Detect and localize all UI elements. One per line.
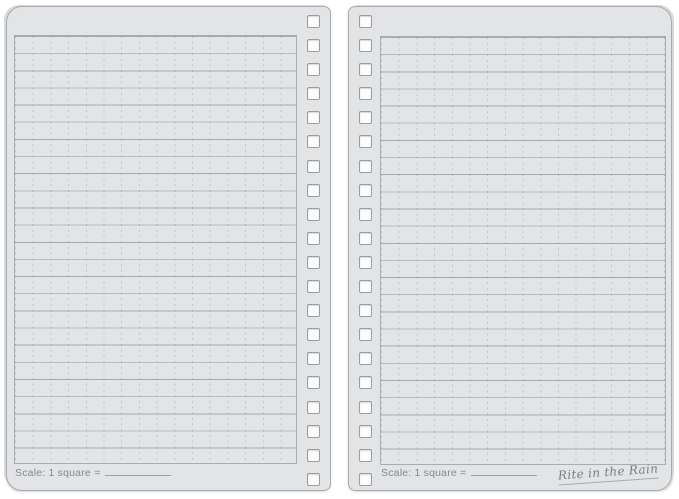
punch-hole bbox=[307, 280, 320, 293]
left-grid-area bbox=[14, 35, 297, 464]
punch-hole bbox=[307, 208, 320, 221]
punch-hole bbox=[307, 328, 320, 341]
punch-hole bbox=[359, 15, 372, 28]
punch-hole bbox=[359, 184, 372, 197]
punch-hole bbox=[307, 256, 320, 269]
punch-hole bbox=[307, 111, 320, 124]
punch-hole bbox=[359, 352, 372, 365]
punch-hole bbox=[307, 449, 320, 462]
punch-hole bbox=[307, 39, 320, 52]
punch-hole bbox=[307, 376, 320, 389]
punch-hole bbox=[359, 232, 372, 245]
punch-hole bbox=[359, 160, 372, 173]
punch-hole bbox=[307, 425, 320, 438]
punch-hole bbox=[307, 304, 320, 317]
binding-holes-left-page bbox=[307, 15, 320, 486]
scale-caption: Scale: 1 square = bbox=[15, 467, 171, 479]
punch-hole bbox=[359, 111, 372, 124]
notebook-spread: Scale: 1 square = Scale: 1 square = Rite… bbox=[0, 0, 679, 499]
punch-hole bbox=[359, 280, 372, 293]
punch-hole bbox=[359, 473, 372, 486]
scale-blank-line bbox=[105, 472, 171, 476]
punch-hole bbox=[359, 208, 372, 221]
punch-hole bbox=[307, 63, 320, 76]
punch-hole bbox=[359, 328, 372, 341]
right-page: Scale: 1 square = Rite in the Rain bbox=[348, 6, 672, 491]
punch-hole bbox=[307, 352, 320, 365]
right-grid-area bbox=[380, 36, 666, 465]
scale-blank-line bbox=[471, 472, 537, 476]
punch-hole bbox=[359, 256, 372, 269]
binding-holes-right-page bbox=[359, 15, 372, 486]
brand-logo: Rite in the Rain bbox=[557, 462, 658, 486]
punch-hole bbox=[307, 232, 320, 245]
left-page: Scale: 1 square = bbox=[6, 6, 331, 491]
punch-hole bbox=[307, 401, 320, 414]
punch-hole bbox=[307, 87, 320, 100]
scale-label: Scale: 1 square = bbox=[381, 467, 466, 479]
punch-hole bbox=[359, 39, 372, 52]
scale-label: Scale: 1 square = bbox=[15, 467, 100, 479]
punch-hole bbox=[359, 376, 372, 389]
punch-hole bbox=[307, 473, 320, 486]
punch-hole bbox=[359, 304, 372, 317]
grid-horizontal-lines bbox=[381, 37, 665, 464]
punch-hole bbox=[307, 160, 320, 173]
punch-hole bbox=[359, 87, 372, 100]
punch-hole bbox=[307, 15, 320, 28]
punch-hole bbox=[359, 63, 372, 76]
punch-hole bbox=[307, 135, 320, 148]
punch-hole bbox=[359, 401, 372, 414]
grid-horizontal-lines bbox=[15, 36, 296, 463]
punch-hole bbox=[359, 425, 372, 438]
scale-caption: Scale: 1 square = bbox=[381, 467, 537, 479]
punch-hole bbox=[359, 135, 372, 148]
punch-hole bbox=[307, 184, 320, 197]
punch-hole bbox=[359, 449, 372, 462]
